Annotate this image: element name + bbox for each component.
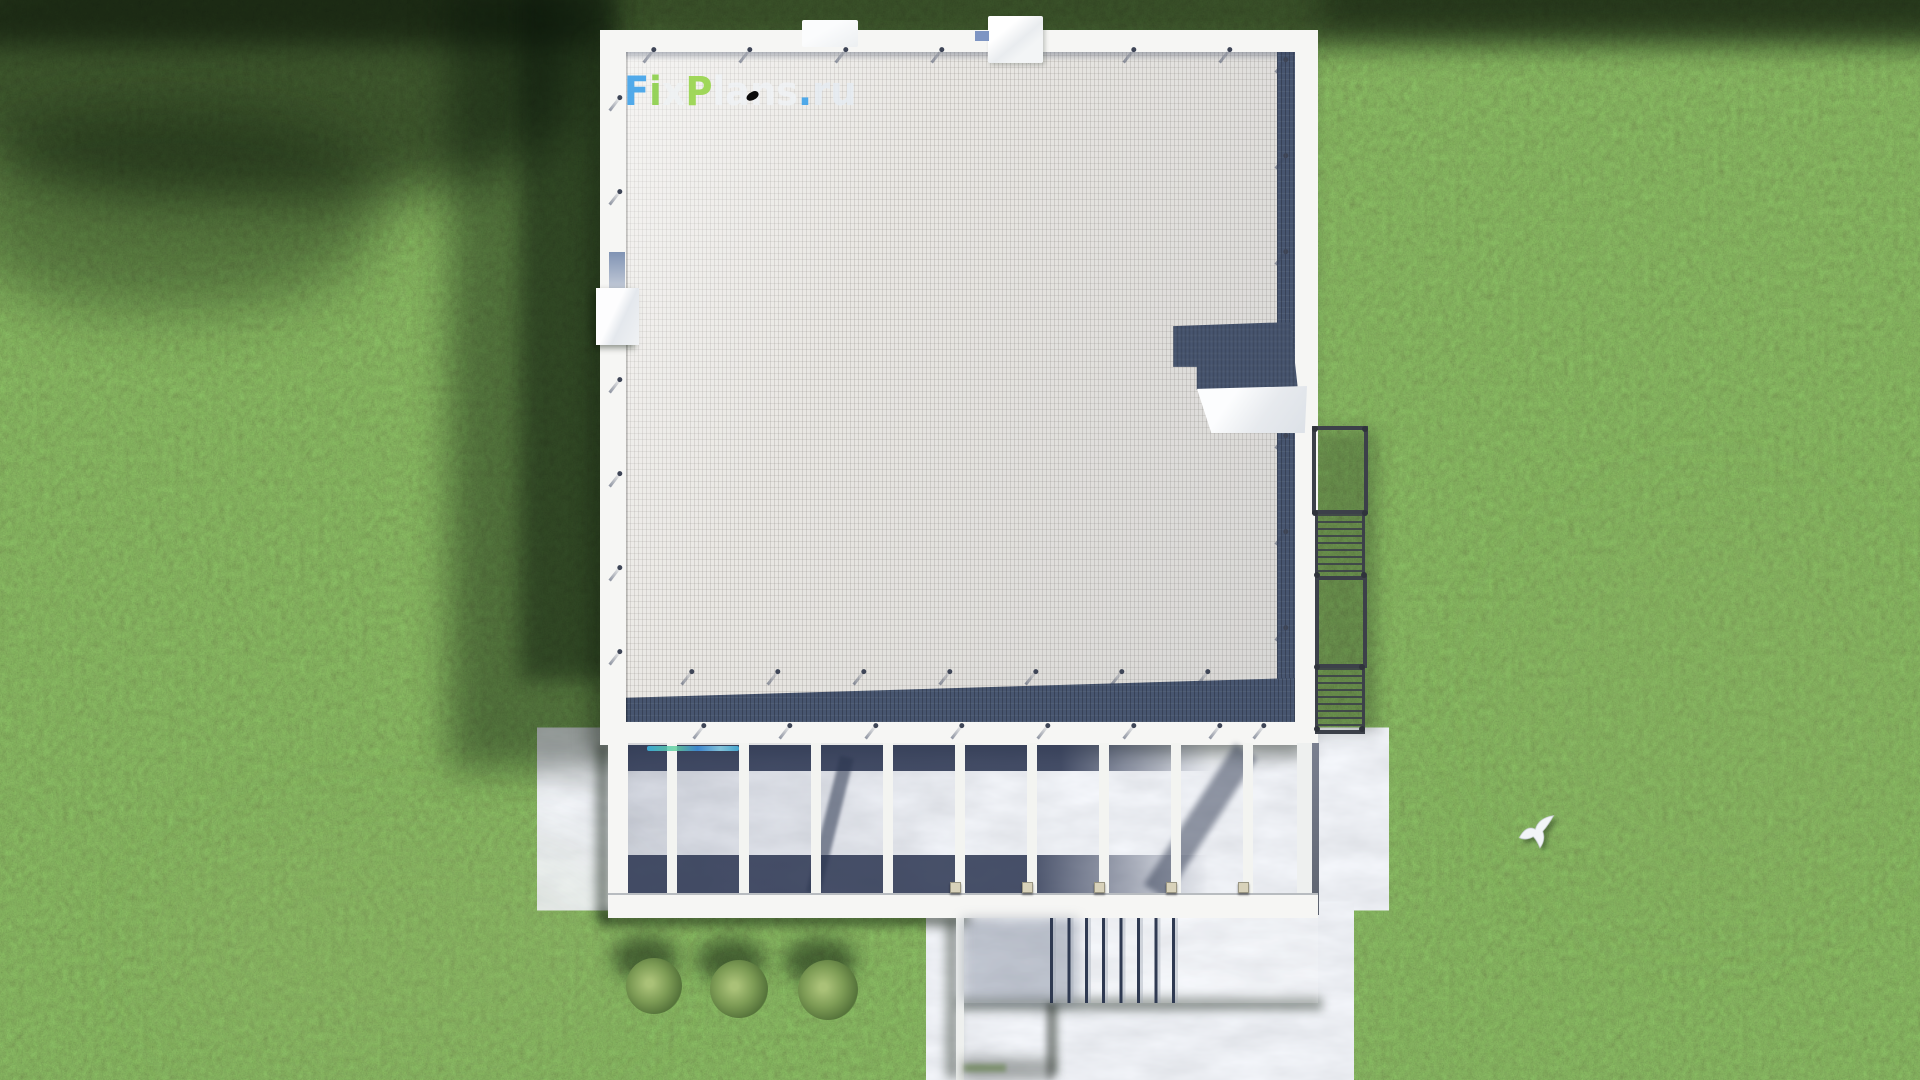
bush-foliage xyxy=(710,960,768,1018)
parapet-joint-tick xyxy=(930,49,942,63)
parapet-joint-tick xyxy=(1036,725,1048,739)
parapet-skylight xyxy=(975,31,989,41)
railing-joint xyxy=(1362,426,1368,432)
roof-chimney-block xyxy=(988,16,1043,63)
bush xyxy=(626,958,682,1014)
parapet-joint-tick xyxy=(1110,671,1122,685)
column-cap xyxy=(1094,882,1105,893)
parapet-joint-tick xyxy=(1274,251,1286,265)
railing-joint xyxy=(1359,726,1365,732)
parapet-joint-tick xyxy=(1122,49,1134,63)
column-cap xyxy=(1238,882,1249,893)
walkway-grass-smudge xyxy=(964,1064,1006,1072)
railing-joint xyxy=(1362,510,1368,516)
parapet-joint-tick xyxy=(1208,725,1220,739)
roof-vent-block xyxy=(802,20,858,47)
concrete-path xyxy=(956,918,1318,1080)
terrace-left-border xyxy=(608,743,628,918)
terrace-pergola xyxy=(608,743,1318,918)
parapet-joint-tick xyxy=(1274,627,1286,641)
terrace-bottom-edge-band xyxy=(608,893,1318,918)
parapet-joint-tick xyxy=(608,651,620,665)
parapet-joint-tick xyxy=(1024,671,1036,685)
parapet-joint-tick xyxy=(852,671,864,685)
garden-steps xyxy=(1050,918,1182,1003)
railing-joint xyxy=(1314,572,1320,578)
parapet-joint-tick xyxy=(1274,59,1286,73)
bush xyxy=(710,960,768,1018)
railing-frame-lower xyxy=(1315,576,1367,668)
column-cap xyxy=(950,882,961,893)
parapet-joint-ticks xyxy=(600,30,1318,745)
exterior-stair-railing xyxy=(1312,426,1370,734)
column-cap xyxy=(1166,882,1177,893)
railing-joint xyxy=(1314,726,1320,732)
railing-joint xyxy=(1361,572,1367,578)
parapet-joint-tick xyxy=(642,49,654,63)
aerial-render: FixPlans.ru xyxy=(0,0,1920,1080)
pergola-beams xyxy=(608,743,1318,893)
parapet-joint-tick xyxy=(608,567,620,581)
parapet-joint-tick xyxy=(680,671,692,685)
parapet-joint-tick xyxy=(766,671,778,685)
parapet-joint-tick xyxy=(834,49,846,63)
parapet-joint-tick xyxy=(608,379,620,393)
parapet-joint-tick xyxy=(608,97,620,111)
column-cap xyxy=(1022,882,1033,893)
parapet-joint-tick xyxy=(608,473,620,487)
railing-joint xyxy=(1312,510,1318,516)
parapet-joint-tick xyxy=(1274,155,1286,169)
railing-end-cap xyxy=(1315,730,1365,734)
west-wall-bay-box xyxy=(596,288,639,345)
parapet-joint-tick xyxy=(738,49,750,63)
railing-frame-upper xyxy=(1312,426,1368,514)
parapet-joint-tick xyxy=(1274,435,1286,449)
parapet-joint-tick xyxy=(1274,531,1286,545)
terrace-right-wall-edge xyxy=(1312,743,1319,915)
railing-joint xyxy=(1312,426,1318,432)
parapet-joint-tick xyxy=(1196,671,1208,685)
railing-joint xyxy=(1359,664,1365,670)
bush xyxy=(798,960,858,1020)
house-roof: FixPlans.ru xyxy=(600,30,1318,745)
parapet-joint-tick xyxy=(608,191,620,205)
bush-foliage xyxy=(798,960,858,1020)
bird-body xyxy=(1517,816,1558,851)
stair-treads-lower xyxy=(1315,668,1365,730)
parapet-joint-tick xyxy=(938,671,950,685)
parapet-joint-tick xyxy=(864,725,876,739)
west-wall-window xyxy=(609,252,625,290)
parapet-joint-tick xyxy=(1252,725,1264,739)
parapet-joint-tick xyxy=(692,725,704,739)
bush-foliage xyxy=(626,958,682,1014)
parapet-joint-tick xyxy=(1122,725,1134,739)
flying-bird xyxy=(1513,811,1562,857)
railing-joint xyxy=(1314,664,1320,670)
glass-reflection-strip xyxy=(647,746,739,751)
parapet-joint-tick xyxy=(950,725,962,739)
parapet-joint-tick xyxy=(778,725,790,739)
stair-treads-upper xyxy=(1315,514,1365,576)
parapet-joint-tick xyxy=(1218,49,1230,63)
